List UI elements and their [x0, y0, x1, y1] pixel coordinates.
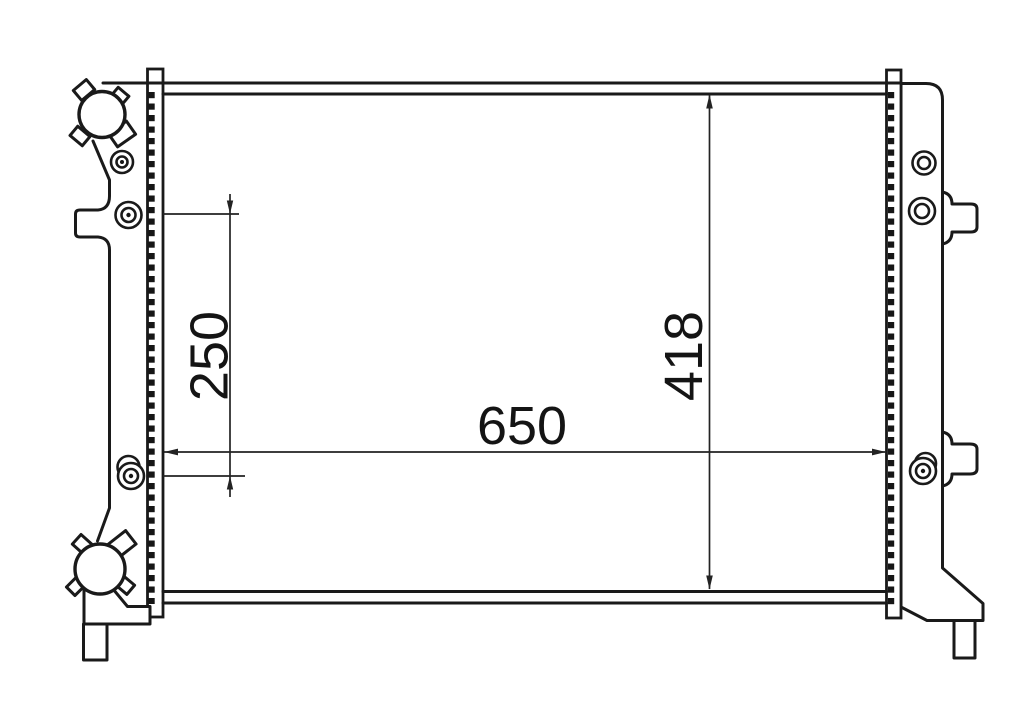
- right-mounting-tab-lower: [943, 432, 978, 486]
- radiator-diagram-canvas: 650 418 250: [0, 0, 1024, 727]
- dim-418-arrow-bottom: [706, 576, 713, 590]
- right-strip-serration: [888, 92, 895, 605]
- left-tank-profile: [76, 141, 110, 541]
- screw-hole: [116, 202, 142, 228]
- lower-hose-fitting: [75, 544, 125, 594]
- radiator-technical-drawing: 650 418 250: [0, 0, 1024, 727]
- right-mounting-tab-upper: [943, 192, 978, 244]
- dim-650-arrow-right: [872, 449, 886, 456]
- dimension-650: 650: [164, 396, 886, 456]
- dim-250-arrow-top: [227, 201, 233, 215]
- dim-650-arrow-left: [164, 449, 178, 456]
- dim-418-label: 418: [654, 311, 714, 401]
- filler-neck: [79, 92, 125, 138]
- dim-250-arrow-bottom: [227, 476, 233, 490]
- left-strip-serration: [149, 92, 156, 604]
- right-header-strip: [887, 70, 902, 618]
- dim-250-label: 250: [180, 311, 240, 401]
- screw-hole: [111, 151, 133, 173]
- screw-hole: [913, 152, 936, 175]
- right-foot-pin: [954, 621, 975, 659]
- screw-hole: [118, 456, 145, 489]
- right-tank: [901, 84, 983, 659]
- dimension-418: 418: [654, 95, 714, 590]
- left-header-strip: [148, 69, 164, 617]
- left-drain-pipe: [84, 624, 108, 660]
- screw-hole: [909, 198, 935, 224]
- dim-650-label: 650: [477, 396, 567, 456]
- left-tank: [66, 80, 150, 660]
- dim-418-arrow-top: [706, 95, 713, 109]
